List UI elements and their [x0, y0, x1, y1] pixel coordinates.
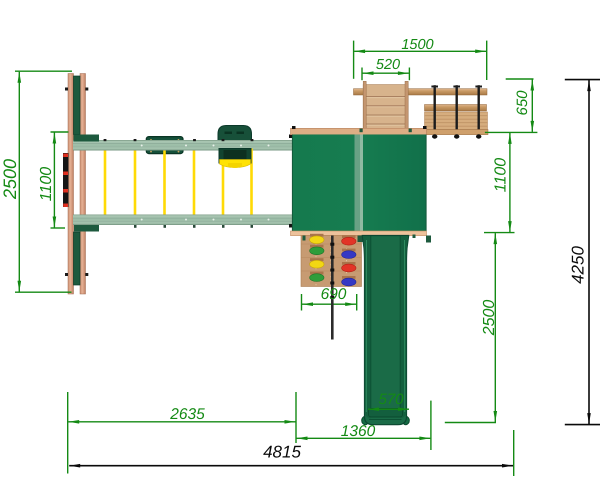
svg-text:1100: 1100: [38, 167, 55, 202]
svg-text:570: 570: [378, 391, 404, 408]
svg-text:2635: 2635: [169, 406, 205, 423]
svg-text:650: 650: [514, 90, 531, 116]
svg-text:1100: 1100: [493, 158, 510, 193]
svg-text:1500: 1500: [401, 37, 433, 53]
svg-text:690: 690: [321, 286, 347, 303]
svg-text:2500: 2500: [481, 300, 498, 337]
svg-text:2500: 2500: [0, 159, 20, 200]
svg-text:1360: 1360: [341, 423, 376, 440]
svg-text:520: 520: [376, 57, 400, 73]
svg-text:4815: 4815: [263, 443, 301, 462]
svg-text:4250: 4250: [569, 246, 588, 284]
